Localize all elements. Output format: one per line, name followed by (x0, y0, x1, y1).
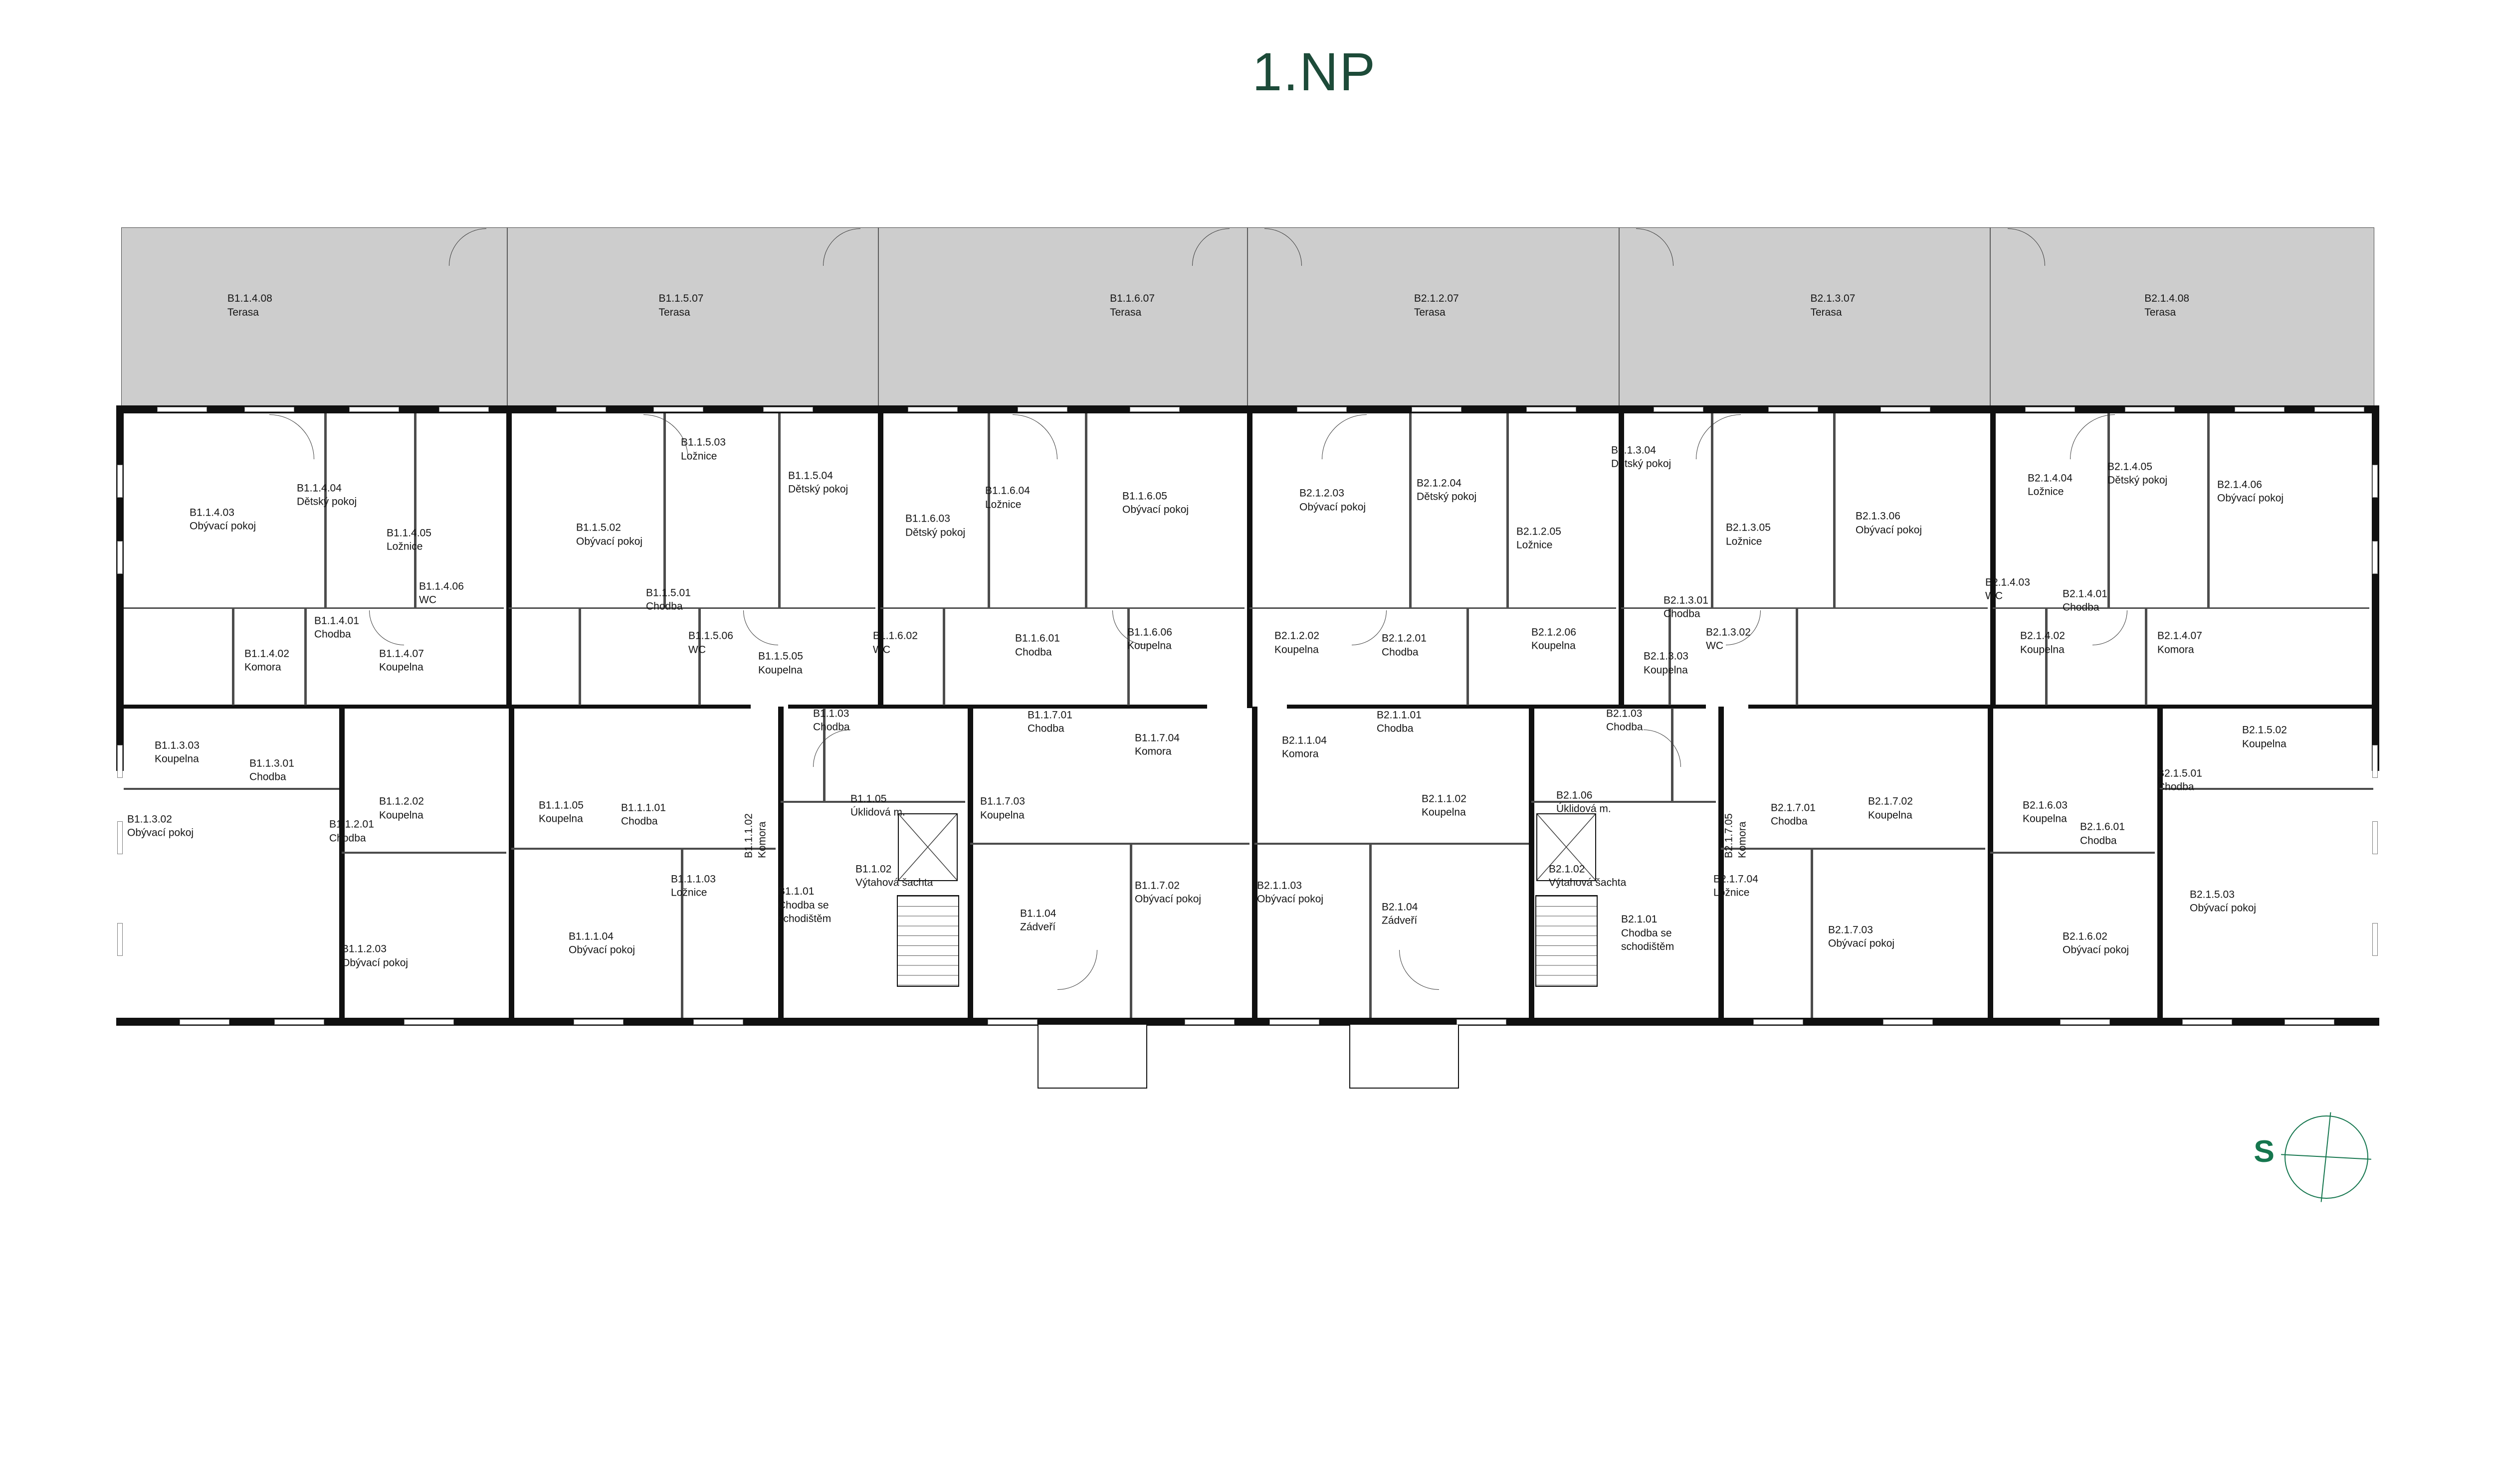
room-label: B1.1.5.02Obývací pokoj (576, 521, 676, 549)
terrace-label: B1.1.5.07Terasa (659, 292, 704, 320)
terrace-divider (507, 228, 508, 406)
room-label: B1.1.5.03Ložnice (681, 436, 781, 463)
partition-wall (1130, 843, 1132, 1018)
window (1269, 1019, 1319, 1025)
window (908, 407, 958, 412)
window (2372, 541, 2378, 574)
partition-wall (1254, 843, 1529, 845)
window (117, 821, 123, 854)
window (653, 407, 703, 412)
room-label: B1.1.4.03Obývací pokoj (190, 506, 289, 533)
room-label: B1.1.5.05Koupelna (758, 650, 858, 677)
window (2372, 745, 2378, 778)
wall (2157, 707, 2163, 1019)
window (157, 407, 207, 412)
wall (2372, 405, 2379, 771)
partition-wall (1249, 607, 1616, 609)
staircase (897, 895, 959, 987)
partition-wall (579, 608, 581, 705)
window (404, 1019, 454, 1025)
room-label: B2.1.4.05Dětský pokoj (2107, 460, 2207, 487)
partition-wall (511, 848, 776, 850)
room-label: B2.1.6.01Chodba (2080, 820, 2180, 848)
room-label: B2.1.4.06Obývací pokoj (2217, 478, 2317, 505)
window (693, 1019, 743, 1025)
partition-wall (943, 608, 945, 705)
window (2285, 1019, 2334, 1025)
room-label: B1.1.7.04Komora (1135, 731, 1235, 758)
window (1768, 407, 1818, 412)
room-label: B1.1.1.02Komora (742, 758, 770, 858)
wall (1748, 705, 2372, 709)
terrace-divider (1247, 228, 1248, 406)
window (1185, 1019, 1235, 1025)
room-label: B2.1.1.04Komora (1282, 734, 1382, 761)
room-label: B1.1.04Zádveří (1020, 907, 1120, 934)
room-label: B2.1.03Chodba (1606, 707, 1706, 735)
window (2125, 407, 2175, 412)
terrace-label: B1.1.6.07Terasa (1110, 292, 1155, 320)
room-label: B2.1.2.02Koupelna (1274, 629, 1374, 657)
partition-wall (2045, 608, 2048, 705)
room-label: B1.1.6.06Koupelna (1127, 625, 1227, 653)
page-title: 1.NP (1252, 41, 1377, 103)
room-label: B2.1.3.03Koupelna (1644, 650, 1743, 677)
room-label: B2.1.7.05Komora (1722, 758, 1750, 858)
window (1883, 1019, 1933, 1025)
partition-wall (1833, 413, 1836, 607)
door-swing-arc (1399, 950, 1439, 990)
partition-wall (1990, 852, 2155, 854)
partition-wall (124, 607, 504, 609)
partition-wall (2207, 413, 2210, 607)
terrace-label: B1.1.4.08Terasa (227, 292, 272, 320)
room-label: B1.1.6.01Chodba (1015, 632, 1115, 659)
room-label: B2.1.5.02Koupelna (2242, 724, 2342, 751)
room-label: B2.1.4.07Komora (2157, 629, 2257, 657)
room-label: B2.1.1.02Koupelna (1422, 792, 1521, 820)
room-label: B1.1.6.02WC (873, 629, 973, 657)
window (244, 407, 294, 412)
entrance-vestibule (1038, 1025, 1147, 1089)
room-label: B1.1.01Chodba se schodištěm (778, 885, 878, 926)
window (2314, 407, 2364, 412)
window (1456, 1019, 1506, 1025)
wall (968, 707, 973, 1019)
room-label: B2.1.3.05Ložnice (1726, 521, 1826, 549)
room-label: B1.1.5.01Chodba (646, 586, 746, 613)
window (2372, 465, 2378, 498)
room-label: B1.1.4.02Komora (244, 647, 344, 675)
terrace-divider (878, 228, 879, 406)
partition-wall (880, 607, 1245, 609)
wall (1988, 707, 1993, 1019)
partition-wall (1721, 848, 1985, 850)
window (2182, 1019, 2232, 1025)
window (117, 465, 123, 498)
room-label: B1.1.7.01Chodba (1028, 708, 1127, 736)
window (117, 923, 123, 956)
room-label: B2.1.7.02Koupelna (1868, 795, 1968, 822)
room-label: B2.1.01Chodba se schodištěm (1621, 913, 1721, 954)
wall (778, 707, 784, 1019)
wall (339, 707, 345, 1019)
room-label: B2.1.4.01Chodba (2063, 587, 2162, 615)
wall (116, 405, 124, 771)
window (1654, 407, 1703, 412)
room-label: B1.1.4.07Koupelna (379, 647, 479, 675)
room-label: B2.1.2.01Chodba (1382, 632, 1481, 659)
room-label: B2.1.1.01Chodba (1377, 708, 1476, 736)
room-label: B2.1.02Výtahová šachta (1549, 862, 1649, 890)
room-label: B2.1.6.02Obývací pokoj (2063, 930, 2162, 957)
room-label: B1.1.4.06WC (419, 579, 519, 607)
window (117, 541, 123, 574)
partition-wall (232, 608, 234, 705)
room-label: B1.1.03Chodba (813, 707, 913, 735)
room-label: B1.1.5.04Dětský pokoj (788, 469, 888, 496)
room-label: B2.1.3.06Obývací pokoj (1856, 510, 1955, 537)
room-label: B2.1.3.01Chodba (1663, 594, 1763, 621)
door-swing-arc (1057, 950, 1097, 990)
partition-wall (342, 852, 506, 854)
compass-north-label: S (2254, 1133, 2275, 1169)
partition-wall (124, 788, 340, 790)
partition-wall (1506, 413, 1509, 607)
room-label: B2.1.3.02WC (1706, 625, 1806, 653)
window (349, 407, 399, 412)
window (1880, 407, 1930, 412)
room-label: B2.1.2.04Dětský pokoj (1417, 477, 1516, 504)
terrace-label: B2.1.3.07Terasa (1810, 292, 1855, 320)
partition-wall (1796, 608, 1798, 705)
window (2372, 821, 2378, 854)
staircase (1535, 895, 1598, 987)
partition-wall (970, 843, 1249, 845)
window (1297, 407, 1347, 412)
window (1130, 407, 1180, 412)
compass: S (2285, 1115, 2368, 1199)
window (1412, 407, 1461, 412)
window (1526, 407, 1576, 412)
door-swing-arc (1322, 414, 1367, 459)
room-label: B2.1.4.02Koupelna (2020, 629, 2120, 657)
room-label: B2.1.5.03Obývací pokoj (2190, 888, 2289, 915)
room-label: B1.1.2.01Chodba (329, 818, 429, 845)
wall (509, 707, 514, 1019)
window (988, 1019, 1038, 1025)
wall (116, 1018, 2380, 1025)
room-label: B2.1.2.05Ložnice (1516, 525, 1616, 553)
room-label: B2.1.7.04Ložnice (1713, 873, 1813, 900)
room-label: B1.1.6.04Ložnice (985, 484, 1085, 512)
terrace-label: B2.1.4.08Terasa (2144, 292, 2189, 320)
door-swing-arc (1013, 414, 1057, 459)
terrace-label: B2.1.2.07Terasa (1414, 292, 1459, 320)
room-label: B2.1.7.03Obývací pokoj (1828, 924, 1928, 951)
door-swing-arc (2070, 414, 2115, 459)
room-label: B1.1.1.04Obývací pokoj (569, 930, 668, 957)
room-label: B1.1.6.03Dětský pokoj (905, 512, 1005, 540)
entrance-vestibule (1349, 1025, 1459, 1089)
room-label: B1.1.3.03Koupelna (155, 739, 254, 766)
room-label: B2.1.1.03Obývací pokoj (1257, 879, 1357, 906)
window (2025, 407, 2075, 412)
room-label: B1.1.2.03Obývací pokoj (342, 942, 441, 970)
door-swing-arc (813, 730, 850, 767)
room-label: B1.1.4.04Dětský pokoj (297, 482, 397, 509)
room-label: B1.1.02Výtahová šachta (855, 862, 955, 890)
terrace-divider (1990, 228, 1991, 406)
door-swing-arc (1644, 730, 1681, 767)
wall (878, 412, 883, 708)
room-label: B1.1.7.02Obývací pokoj (1135, 879, 1235, 906)
room-label: B1.1.4.01Chodba (314, 614, 414, 641)
window (180, 1019, 229, 1025)
door-swing-arc (269, 414, 314, 459)
window (274, 1019, 324, 1025)
partition-wall (1993, 607, 2369, 609)
partition-wall (1085, 413, 1087, 607)
room-label: B1.1.4.05Ložnice (387, 526, 486, 554)
room-label: B2.1.7.01Chodba (1771, 801, 1870, 829)
wall (122, 705, 751, 709)
partition-wall (2145, 608, 2147, 705)
window (117, 745, 123, 778)
window (574, 1019, 623, 1025)
window (1018, 407, 1067, 412)
window (2060, 1019, 2110, 1025)
partition-wall (414, 413, 416, 607)
window (439, 407, 489, 412)
wall (1718, 707, 1724, 1019)
room-label: B1.1.3.01Chodba (249, 756, 349, 784)
room-label: B1.1.05Úklidová m. (850, 792, 950, 820)
wall (1529, 707, 1534, 1019)
partition-wall (698, 608, 701, 705)
room-label: B1.1.1.01Chodba (621, 801, 721, 829)
room-label: B2.1.2.03Obývací pokoj (1299, 487, 1399, 514)
room-label: B2.1.5.01Chodba (2157, 767, 2257, 794)
room-label: B1.1.1.03Ložnice (671, 873, 771, 900)
window (2372, 923, 2378, 956)
window (556, 407, 606, 412)
room-label: B1.1.6.05Obývací pokoj (1122, 489, 1222, 517)
wall (1990, 412, 1996, 708)
room-label: B1.1.3.02Obývací pokoj (127, 813, 227, 840)
partition-wall (324, 413, 327, 607)
room-label: B2.1.04Zádveří (1382, 901, 1481, 928)
wall (506, 412, 512, 708)
wall (1247, 412, 1252, 708)
terrace-divider (1619, 228, 1620, 406)
room-label: B2.1.3.04Dětský pokoj (1611, 443, 1711, 471)
floor-plan-sheet: 1.NP B1.1.4.08TerasaB1.1.5.07TerasaB1.1.… (0, 0, 2494, 1273)
room-label: B2.1.06Úklidová m. (1556, 788, 1656, 816)
partition-wall (1409, 413, 1412, 607)
room-label: B1.1.7.03Koupelna (980, 795, 1080, 822)
room-label: B2.1.2.06Koupelna (1531, 625, 1631, 653)
partition-wall (1369, 843, 1372, 1018)
window (763, 407, 813, 412)
wall (1252, 707, 1257, 1019)
window (2235, 407, 2285, 412)
window (1753, 1019, 1803, 1025)
